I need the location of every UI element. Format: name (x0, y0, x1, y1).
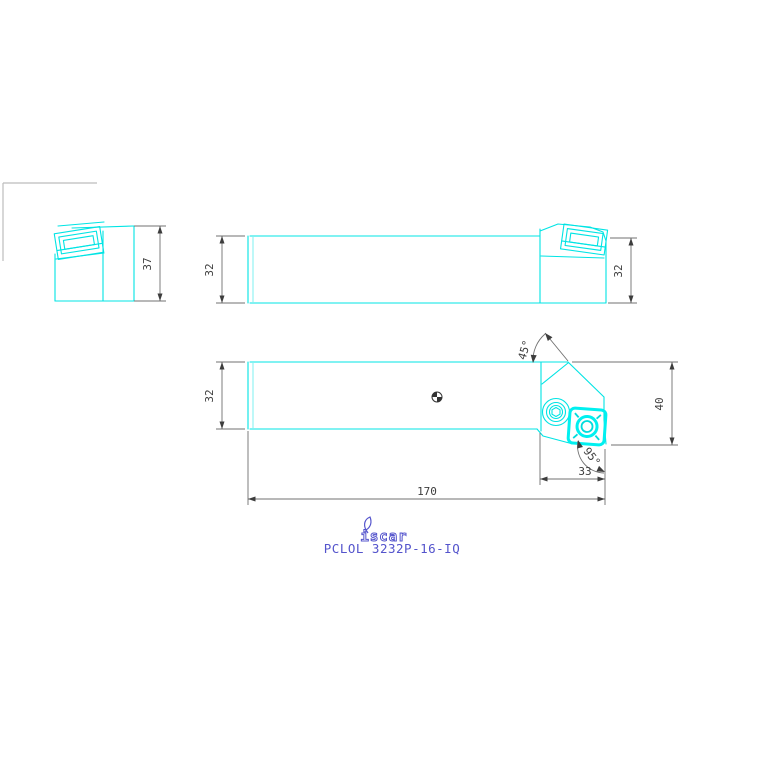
front-view-shank-outline (248, 362, 568, 429)
dim-text-40: 40 (653, 397, 666, 410)
clamp-screw (543, 399, 570, 426)
front-view-insert (568, 408, 606, 445)
dim-overall-length: 170 (248, 431, 605, 505)
top-view-shank-outline (248, 236, 606, 303)
dim-text-32-top-right: 32 (612, 264, 625, 277)
top-view: 32 32 (203, 224, 637, 303)
dim-end-height: 37 (134, 226, 166, 301)
dim-text-37: 37 (141, 257, 154, 270)
front-view: 32 45° 40 95° (203, 331, 678, 505)
top-view-insert (561, 224, 608, 255)
drawing-frame-corner (3, 183, 97, 261)
dim-text-32-front: 32 (203, 389, 216, 402)
top-view-head-outline (540, 224, 606, 303)
dim-text-170: 170 (417, 485, 437, 498)
end-view: 37 (54, 222, 166, 301)
cad-drawing-canvas: 37 32 (0, 0, 767, 767)
dim-text-33: 33 (578, 465, 591, 478)
technical-drawing: 37 32 (0, 0, 767, 767)
dim-text-32-top-left: 32 (203, 263, 216, 276)
branding: iscar PCLOL 3232P-16-IQ (324, 517, 460, 556)
dim-top-width-right: 32 (608, 238, 637, 303)
dim-text-45deg: 45° (516, 339, 534, 362)
dim-chamfer-angle: 45° (516, 331, 568, 363)
end-view-body-outline (55, 222, 134, 301)
centermark-icon (432, 392, 442, 402)
dim-top-width-left: 32 (203, 236, 245, 303)
part-number: PCLOL 3232P-16-IQ (324, 541, 460, 556)
dim-front-shank-height: 32 (203, 362, 245, 429)
